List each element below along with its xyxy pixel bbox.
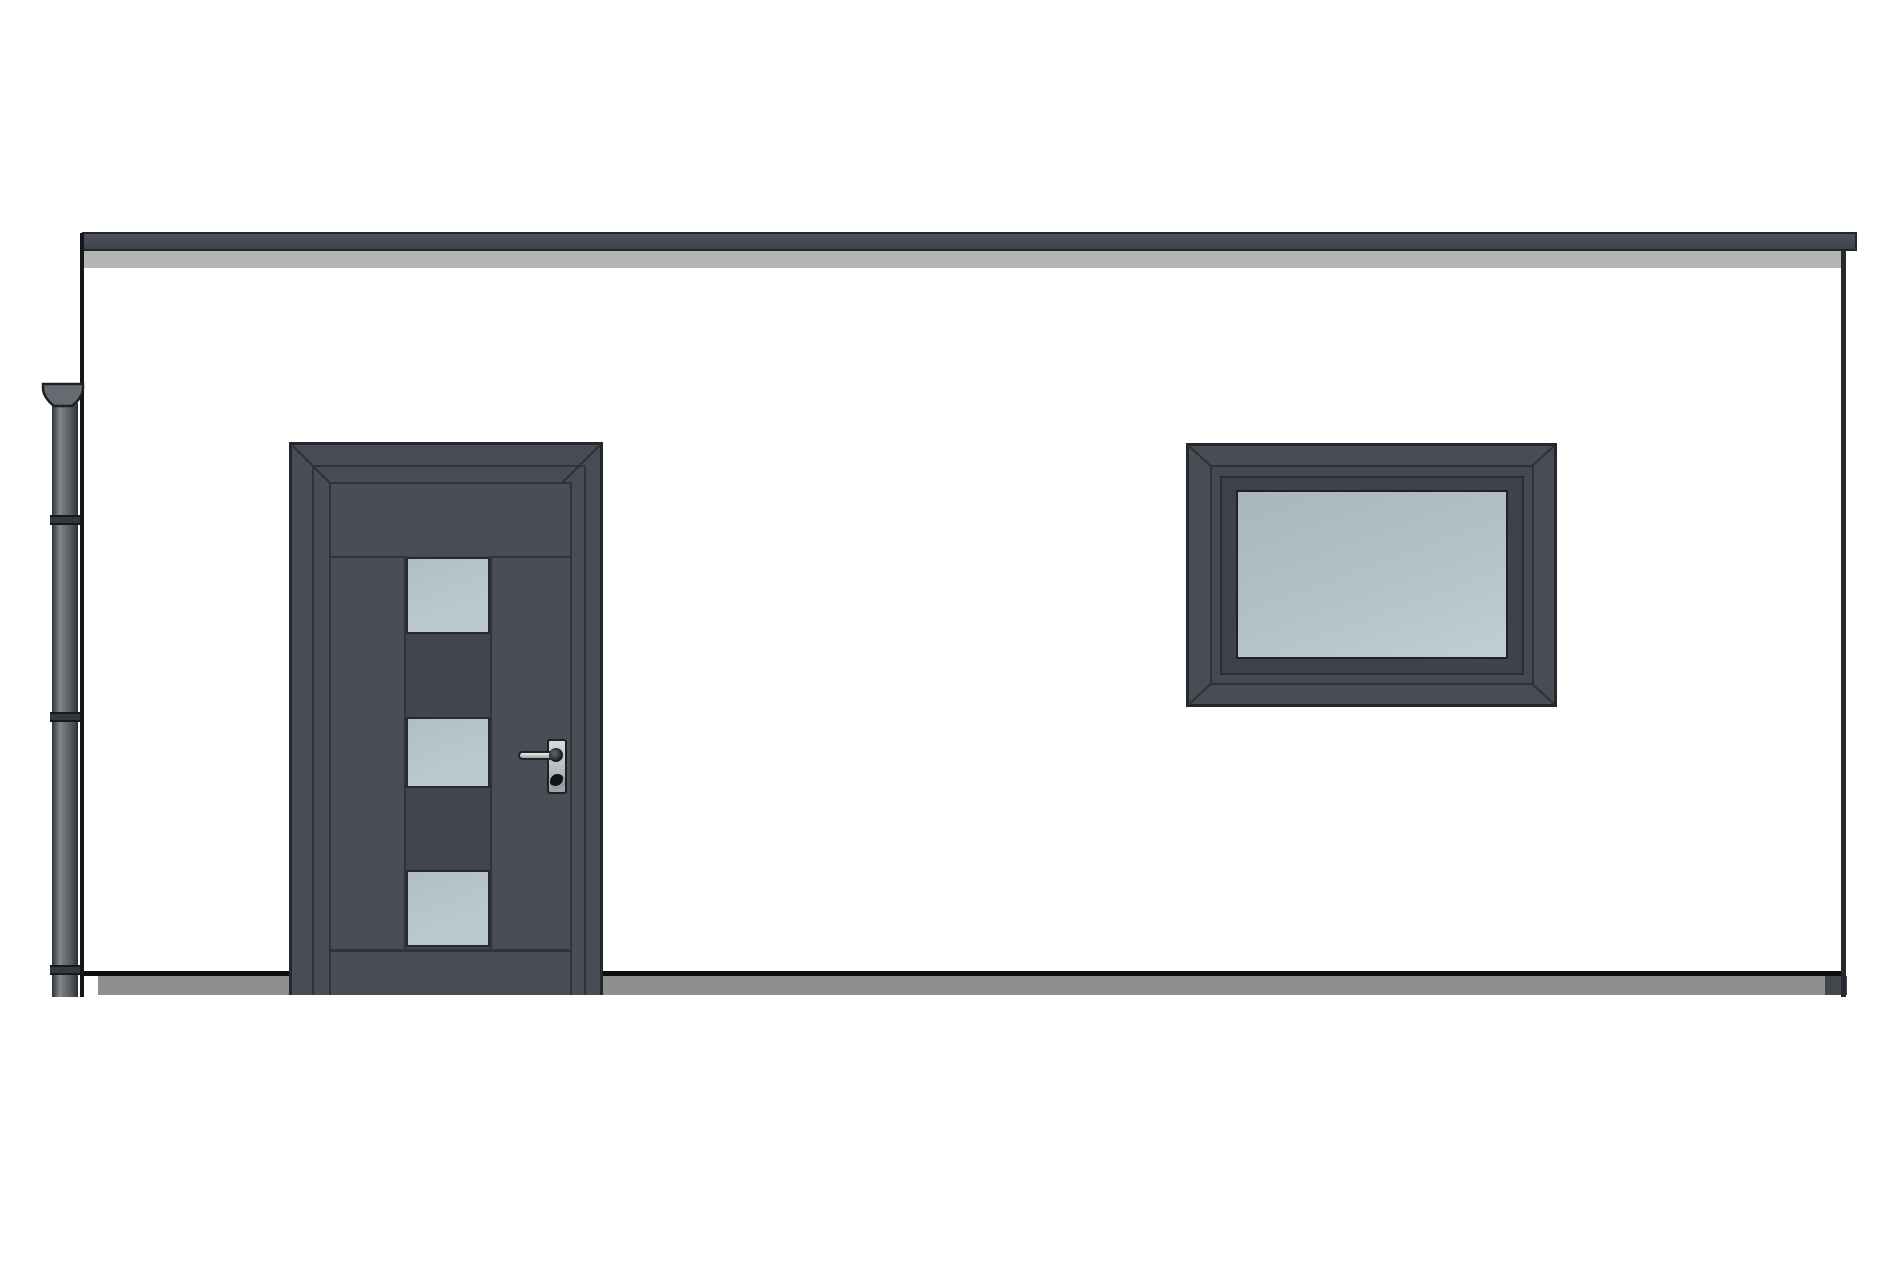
wall-right-edge: [1841, 250, 1846, 997]
fascia-shadow-strip: [84, 251, 1841, 268]
elevation-drawing: [0, 0, 1900, 1266]
door-glass-panel-2: [406, 717, 490, 788]
door-handle-pivot: [549, 748, 563, 762]
downpipe-collar: [50, 712, 80, 722]
door-glass-column: [404, 556, 492, 949]
door-keyhole: [550, 774, 565, 789]
window: [1186, 443, 1557, 707]
door-glass-panel-1: [406, 557, 490, 634]
downpipe-hopper-icon: [41, 382, 85, 408]
downpipe-collar: [50, 965, 80, 975]
door-leaf: [329, 482, 572, 995]
wall-left-edge: [80, 233, 84, 997]
downpipe: [52, 403, 78, 997]
entrance-door: [289, 442, 603, 995]
window-glass: [1236, 490, 1508, 659]
downpipe-collar: [50, 515, 80, 525]
door-glass-panel-3: [406, 870, 490, 947]
door-bottom-rail-line: [331, 949, 570, 952]
roof-fascia: [82, 232, 1857, 251]
